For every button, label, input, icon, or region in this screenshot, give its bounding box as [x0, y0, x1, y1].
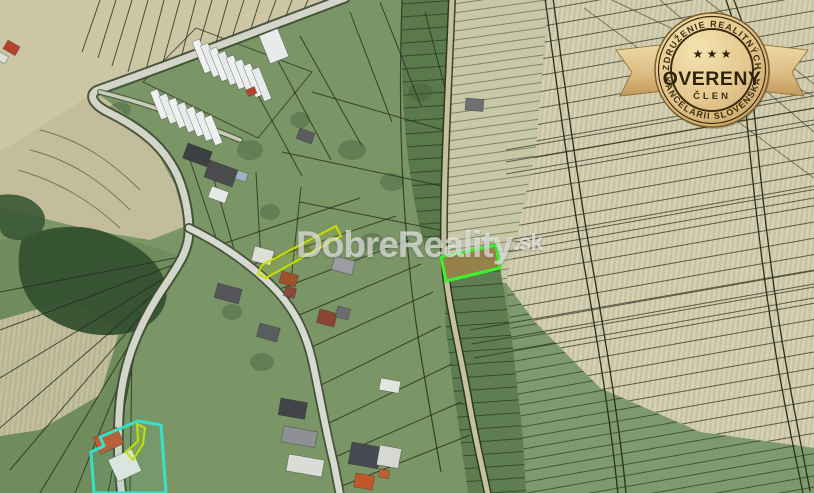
badge-title: OVERENÝ [663, 66, 762, 90]
badge-seal: ZDRUŽENIE REALITNÝCH KANCELÁRIÍ SLOVENSK… [655, 13, 770, 129]
badge-stars-icon: ★ ★ ★ [693, 47, 732, 61]
badge-subtitle: ČLEN [693, 90, 731, 102]
certified-member-badge: ZDRUŽENIE REALITNÝCH KANCELÁRIÍ SLOVENSK… [612, 0, 812, 150]
listing-map-image: DobreReality.sk ZDRUŽENIE REALITNÝCH [0, 0, 814, 493]
